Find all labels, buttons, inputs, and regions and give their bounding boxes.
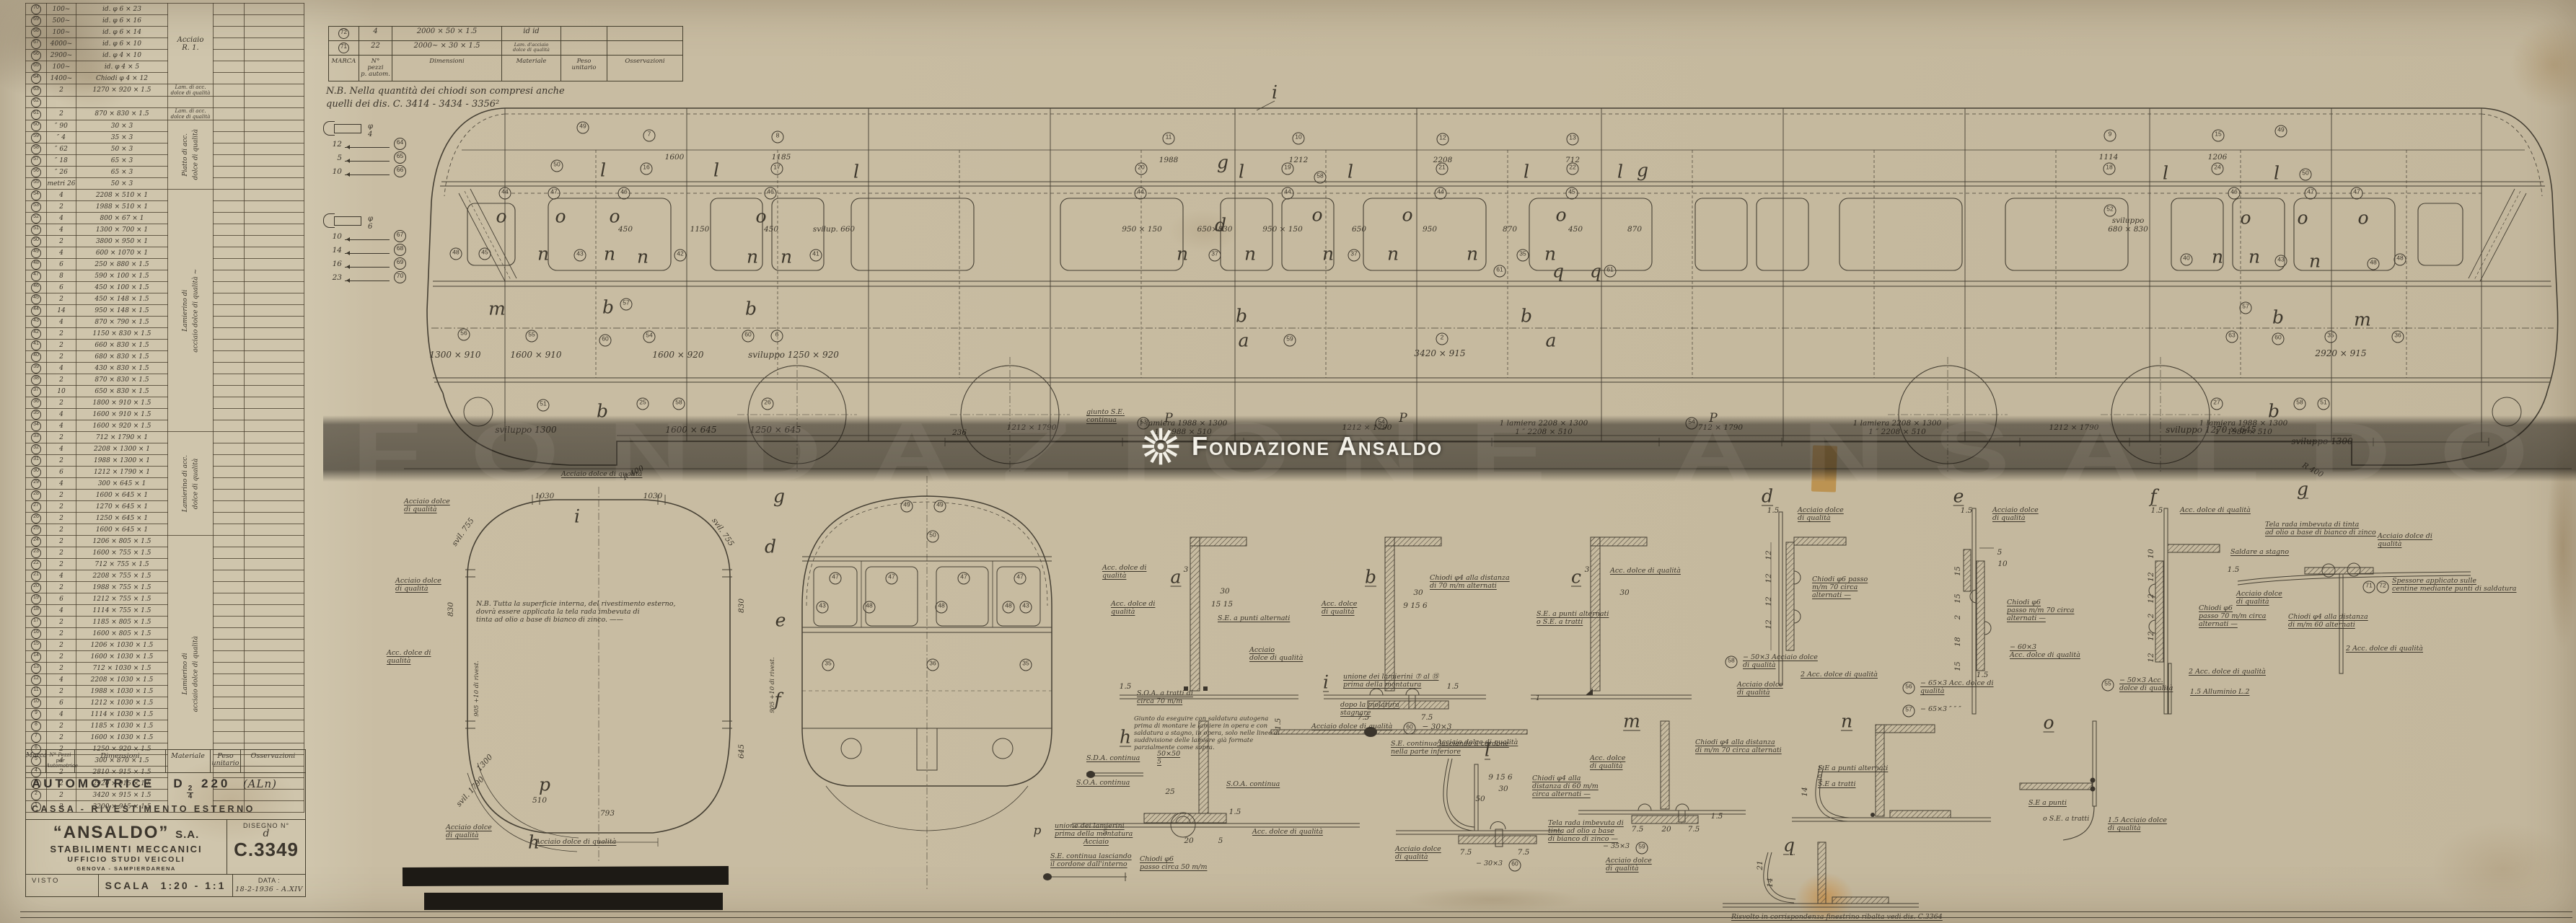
drawing-subtitle: CASSA - RIVESTIMENTO ESTERNO	[32, 804, 299, 814]
ref-circle: 19	[1282, 160, 1294, 175]
parts-row: 1242208 × 1030 × 1.5	[26, 674, 304, 686]
dim-note: 2	[1953, 615, 1962, 620]
ref-circle: 22	[1567, 160, 1579, 175]
part-number: 47	[830, 573, 842, 585]
part-dim: 1206 × 805 × 1.5	[76, 536, 168, 547]
part-dim: 1150 × 830 × 1.5	[76, 328, 168, 340]
ref-circle: 72	[2377, 578, 2389, 593]
dim-note: 1.5 Alluminio L.2	[2190, 688, 2250, 696]
part-dim: 1600 × 755 × 1.5	[76, 547, 168, 559]
part-qty: 6	[47, 259, 76, 270]
part-number: 47	[958, 573, 970, 585]
part-dim: 300 × 645 × 1	[76, 478, 168, 490]
dim-note: Acciaio dolce di qualità	[1992, 506, 2039, 522]
part-peso	[214, 674, 245, 686]
part-number: 65	[394, 151, 406, 164]
part-qty: 2	[47, 340, 76, 351]
parts-row: 58″ 6250 × 3	[26, 143, 304, 155]
part-number: 66	[394, 165, 406, 177]
part-qty: 4	[47, 605, 76, 617]
dim-note: 450	[1568, 225, 1583, 234]
ref-circle: 21	[1436, 160, 1449, 175]
part-marca: 56	[26, 167, 47, 178]
rivet-icon: φ 6	[323, 213, 366, 226]
dim-note: Acc. dolce di qualità	[1322, 600, 1357, 616]
part-dim: 1600 × 645 × 1	[76, 490, 168, 501]
dim-note: 15	[1953, 661, 1962, 671]
part-osservazioni	[245, 73, 304, 84]
dim-note: Acc. dolce di qualità	[1590, 754, 1625, 770]
part-number: 27	[31, 502, 41, 512]
part-marca: 40	[26, 351, 47, 363]
part-marca: 29	[26, 478, 47, 490]
part-marca: 7	[26, 732, 47, 743]
part-peso	[214, 467, 245, 478]
part-letter: p	[1034, 823, 1042, 838]
part-number: 48	[2394, 254, 2406, 266]
part-number: 35	[1517, 249, 1529, 262]
part-qty: 4	[47, 674, 76, 686]
part-number: 45	[479, 248, 491, 260]
ref-circle: 46	[2228, 185, 2241, 200]
ref-circle: 56	[458, 326, 470, 341]
ref-circle: 49	[901, 498, 913, 513]
parts-row: 412660 × 830 × 1.5	[26, 340, 304, 351]
parts-row: 1521206 × 1030 × 1.5	[26, 640, 304, 651]
part-osservazioni	[245, 490, 304, 501]
part-dim: 680 × 830 × 1.5	[76, 351, 168, 363]
part-letter: n	[2248, 247, 2260, 268]
part-dim: 1988 × 510 × 1	[76, 201, 168, 213]
parts-row: 674000~id. φ 6 × 10	[26, 38, 304, 50]
rivet-length-row: 1264	[323, 137, 406, 151]
drawing-title: AUTOMOTRICE D24 220 (ALn)	[32, 777, 299, 800]
part-number: 49	[2275, 125, 2287, 138]
part-osservazioni	[245, 155, 304, 167]
part-dim: 870 × 830 × 1.5	[76, 374, 168, 386]
part-osservazioni	[245, 340, 304, 351]
part-letter: d	[1762, 486, 1773, 507]
part-peso	[214, 409, 245, 420]
part-peso	[214, 443, 245, 455]
part-peso	[214, 73, 245, 84]
ref-circle: 11	[1163, 130, 1175, 145]
dim-note: 7.5	[1421, 713, 1433, 722]
parts-row: 1621600 × 805 × 1.5	[26, 628, 304, 640]
part-number: 31	[31, 456, 41, 466]
part-qty: 2	[47, 513, 76, 524]
dim-note: 12	[2147, 653, 2155, 662]
part-osservazioni	[245, 467, 304, 478]
part-marca: 44	[26, 305, 47, 317]
dim-note: 14	[1801, 787, 1809, 796]
part-qty: 2	[47, 501, 76, 513]
ref-circle: 40	[2181, 251, 2193, 266]
part-qty	[47, 97, 76, 108]
part-peso	[214, 317, 245, 328]
parts-row: 1121988 × 1030 × 1.5	[26, 686, 304, 697]
part-number: 47	[2305, 187, 2317, 200]
upper-table-row: 7242000 × 50 × 1.5id id	[329, 27, 682, 41]
dim-note: Acciaio dolce di qualità	[2236, 590, 2282, 606]
parts-row: 5141300 × 700 × 1	[26, 224, 304, 236]
part-number: 19	[1282, 163, 1294, 175]
part-qty: 2	[47, 617, 76, 628]
ref-circle: 2	[1436, 330, 1449, 345]
parts-row: 821185 × 1030 × 1.5	[26, 720, 304, 732]
ref-circle: 47	[548, 185, 561, 200]
part-dim: 870 × 830 × 1.5	[76, 108, 168, 120]
part-dim: 660 × 830 × 1.5	[76, 340, 168, 351]
dim-note: 2	[2147, 614, 2155, 619]
part-marca: 47	[26, 270, 47, 282]
part-qty: 2	[47, 686, 76, 697]
drawing-sheet: 4978111012139154916001185198812122208712…	[0, 0, 2576, 923]
ref-circle: 42	[674, 247, 687, 262]
part-qty: 2	[47, 374, 76, 386]
part-number: 26	[762, 398, 774, 410]
part-number: 10	[31, 698, 41, 708]
redaction-bar	[403, 866, 729, 886]
dim-note: S.O.A. continua	[1226, 780, 1280, 788]
part-number: 8	[31, 721, 41, 731]
header-cell: Materiale	[166, 750, 211, 772]
part-peso	[214, 720, 245, 732]
parts-row: 2021988 × 755 × 1.5	[26, 582, 304, 593]
part-number: 15	[2212, 130, 2225, 142]
part-qty: 2	[47, 455, 76, 467]
part-number: 35	[1020, 659, 1032, 671]
part-qty: 4000~	[47, 38, 76, 50]
header-cell: N° Pezzi per Automotrice	[46, 750, 75, 772]
part-letter: l	[1485, 740, 1490, 761]
parts-row: 132712 × 1030 × 1.5	[26, 663, 304, 674]
scale-cell: SCALA 1:20 - 1:1	[99, 875, 233, 896]
parts-row: 394430 × 830 × 1.5	[26, 363, 304, 374]
company-block: “ANSALDO” S.A. STABILIMENTI MECCANICI UF…	[26, 820, 227, 874]
part-peso	[214, 178, 245, 190]
part-marca: 8	[26, 720, 47, 732]
header-cell: Peso unitario	[561, 56, 607, 81]
part-marca: 12	[26, 674, 47, 686]
part-letter: n	[537, 244, 549, 265]
parts-row: 60″ 9030 × 3Piatto di acc. dolce di qual…	[26, 120, 304, 132]
parts-row: 5442208 × 510 × 1Lamierino di acciaio do…	[26, 190, 304, 201]
part-number: 36	[2392, 331, 2404, 343]
rivet-icon: φ 4	[323, 121, 366, 134]
part-qty: 4	[47, 443, 76, 455]
part-number: 36	[927, 659, 939, 671]
part-dim: 800 × 67 × 1	[76, 213, 168, 224]
part-marca: 48	[26, 259, 47, 270]
ref-circle: 47	[886, 570, 898, 585]
ref-circle: 18	[2104, 160, 2116, 175]
part-number: 7	[643, 130, 656, 142]
dim-note: sviluppo 680 × 830	[2108, 216, 2148, 234]
parts-row: 402680 × 830 × 1.5	[26, 351, 304, 363]
part-qty: 4	[47, 213, 76, 224]
ref-circle: 41	[810, 247, 822, 262]
part-number: 40	[2181, 254, 2193, 266]
part-letter: b	[1521, 306, 1532, 327]
part-dim: id. φ 6 × 14	[76, 27, 168, 38]
grip-length: 12	[323, 140, 345, 149]
part-marca: 42	[26, 328, 47, 340]
ref-circle: 13	[1567, 131, 1579, 146]
part-dim: 450 × 100 × 1.5	[76, 282, 168, 293]
part-qty: 2	[47, 432, 76, 443]
part-number: 28	[31, 490, 41, 500]
part-number: 52	[31, 213, 41, 224]
dim-note: Chiodi φ6 passo m/m 70 circa alternati —	[2007, 599, 2074, 622]
part-marca: 43	[26, 317, 47, 328]
dim-note: svil. 755	[710, 516, 736, 548]
dim-note: 1988	[1159, 156, 1179, 164]
part-number: 69	[394, 257, 406, 270]
part-dim: 2000 × 50 × 1.5	[392, 27, 502, 40]
part-number: 50	[927, 531, 939, 543]
part-peso	[214, 455, 245, 467]
part-osservazioni	[245, 409, 304, 420]
part-dim: 870 × 790 × 1.5	[76, 317, 168, 328]
part-qty: 100~	[47, 4, 76, 15]
part-number: 58	[2294, 398, 2306, 410]
part-marca: 68	[26, 27, 47, 38]
part-number: 44	[31, 306, 41, 316]
part-material: Lam. di acc. dolce di qualità	[168, 108, 214, 120]
visto-cell: VISTO	[26, 875, 99, 896]
part-osservazioni	[245, 363, 304, 374]
part-osservazioni	[245, 501, 304, 513]
part-dim: 1212 × 1790 × 1	[76, 467, 168, 478]
dim-note: − 50×3 Acc. dolce di qualità	[2119, 676, 2173, 692]
part-number: 44	[1282, 187, 1294, 200]
ref-circle: 59	[1284, 332, 1296, 347]
part-number: 43	[2275, 255, 2287, 268]
part-dim: 3800 × 950 × 1	[76, 236, 168, 247]
dim-note: 14	[1766, 878, 1775, 887]
part-number: 47	[31, 271, 41, 281]
dim-note: Spessore applicato sulle centine mediant…	[2392, 577, 2516, 593]
dim-note: 905 +10 di rivest.	[473, 661, 480, 717]
part-number: 63	[31, 86, 41, 96]
part-letter: c	[1571, 567, 1581, 588]
part-number: 46	[618, 187, 630, 200]
part-number: 47	[548, 187, 561, 200]
ref-circle: 27	[2211, 395, 2223, 410]
part-dim: 1600 × 1030 × 1.5	[76, 732, 168, 743]
part-dim: 2208 × 1300 × 1	[76, 443, 168, 455]
part-number: 64	[394, 138, 406, 150]
dim-note: Acc. dolce di qualità	[2180, 506, 2251, 514]
part-dim: 1988 × 755 × 1.5	[76, 582, 168, 593]
part-number: 50	[2300, 169, 2312, 181]
dim-note: 25	[1165, 787, 1174, 796]
dim-note: 3	[1585, 565, 1590, 574]
part-letter: o	[496, 206, 506, 227]
part-number: 67	[394, 230, 406, 242]
parts-row: 466450 × 100 × 1.5	[26, 282, 304, 293]
part-number: 72	[2377, 581, 2389, 593]
part-marca: 35	[26, 409, 47, 420]
part-number: 17	[31, 617, 41, 627]
parts-row: 494600 × 1070 × 1	[26, 247, 304, 259]
dim-note: Acciaio dolce di qualità	[535, 838, 616, 846]
part-peso	[214, 236, 245, 247]
dim-note: − 30×3	[1476, 860, 1503, 867]
dim-note: 510	[532, 796, 547, 805]
dim-note: dopo la molatura stagnare	[1340, 701, 1399, 717]
part-number: 9	[31, 710, 41, 720]
part-number: 46	[765, 187, 777, 200]
part-marca: 11	[26, 686, 47, 697]
dim-note: S.E. continua lasciando il cordone nella…	[1391, 740, 1509, 756]
part-marca: 66	[26, 50, 47, 61]
dim-note: 50	[1475, 795, 1485, 803]
part-number: 67	[31, 39, 41, 49]
part-letter: l	[1239, 162, 1244, 182]
part-osservazioni	[245, 686, 304, 697]
part-osservazioni	[245, 605, 304, 617]
parts-row: 5321988 × 510 × 1	[26, 201, 304, 213]
part-peso	[214, 61, 245, 73]
part-dim	[76, 97, 168, 108]
part-qty: 2	[47, 328, 76, 340]
part-number: 59	[31, 133, 41, 143]
part-letter: l	[1617, 162, 1623, 182]
part-number: 51	[537, 399, 550, 412]
part-peso	[214, 709, 245, 720]
ref-circle: 60	[1509, 857, 1521, 872]
rivet-diameter: φ 6	[368, 215, 373, 231]
part-number: 15	[31, 640, 41, 650]
parts-row: 332712 × 1790 × 1Lamierino di acc. dolce…	[26, 432, 304, 443]
part-peso	[214, 363, 245, 374]
parts-row: 6321270 × 920 × 1.5Lam. di acc. dolce di…	[26, 84, 304, 97]
dim-note: 7.5	[1518, 848, 1530, 857]
ref-circle: 12	[1437, 131, 1449, 146]
grip-length: 10	[323, 167, 345, 176]
material-label: Piatto di acc. dolce di qualità	[180, 129, 201, 180]
part-peso	[214, 340, 245, 351]
part-marca: 72	[329, 27, 359, 40]
dim-note: 12	[1764, 619, 1773, 629]
part-marca: 57	[26, 155, 47, 167]
ref-circle: 60	[599, 332, 612, 347]
part-qty: 4	[47, 363, 76, 374]
part-qty: 1400~	[47, 73, 76, 84]
ref-circle: 61	[1604, 262, 1617, 278]
part-letter: f	[2150, 486, 2156, 507]
part-marca: 65	[26, 61, 47, 73]
part-osservazioni	[245, 132, 304, 143]
ref-circle: 7	[643, 127, 656, 142]
part-qty: 6	[47, 697, 76, 709]
part-qty: 2	[47, 490, 76, 501]
part-peso	[214, 582, 245, 593]
part-peso	[561, 41, 607, 55]
part-osservazioni	[245, 559, 304, 570]
ref-circle: 46	[618, 185, 630, 200]
part-osservazioni	[245, 213, 304, 224]
ref-circle: 48	[450, 245, 462, 260]
dim-note: Acciaio dolce di qualità	[404, 498, 450, 513]
part-marca: 63	[26, 84, 47, 97]
part-letter: h	[1120, 727, 1131, 748]
part-number: 12	[1437, 133, 1449, 146]
part-qty: 22	[359, 41, 392, 55]
ref-circle: 58	[1726, 653, 1738, 668]
part-letter: b	[2272, 307, 2284, 328]
part-peso	[214, 143, 245, 155]
dim-note: 950	[1423, 225, 1437, 234]
part-marca: 30	[26, 467, 47, 478]
ref-circle: 57	[1903, 702, 1915, 717]
dim-note: 870	[1503, 225, 1517, 234]
part-qty: 2	[47, 536, 76, 547]
part-qty: 2	[47, 84, 76, 97]
nb-note: N.B. Nella quantità dei chiodi son compr…	[326, 85, 629, 110]
part-letter: n	[781, 247, 792, 268]
part-letter: b	[602, 297, 614, 318]
dim-note: o S.E. a tratti	[2043, 815, 2089, 823]
part-osservazioni	[245, 582, 304, 593]
part-number: 62	[31, 97, 41, 107]
dim-note: Tela rada imbevuta di tinta ad olio a ba…	[1548, 819, 1624, 843]
ref-circle: 43	[817, 599, 829, 614]
part-peso	[214, 732, 245, 743]
part-number: 46	[31, 283, 41, 293]
dim-note: 645	[737, 744, 746, 759]
part-material: Lamierino di acciaio dolce di qualità ~	[168, 190, 214, 432]
part-qty: 2	[47, 651, 76, 663]
dim-note: Acciaio dolce di qualità	[1737, 681, 1783, 697]
watermark-band: FONDAZIONE ANSALDO	[323, 415, 2576, 482]
leader-line	[345, 233, 390, 240]
dim-note: 30	[1498, 785, 1508, 793]
dim-note: 20	[1661, 825, 1671, 834]
part-letter: n	[1387, 244, 1399, 265]
dim-note: 1.5	[1961, 506, 1973, 515]
part-peso	[214, 547, 245, 559]
header-cell: Materiale	[502, 56, 561, 81]
rivet-length-row: 1066	[323, 164, 406, 178]
parts-row: 5023800 × 950 × 1	[26, 236, 304, 247]
part-number: 19	[31, 594, 41, 604]
part-peso	[214, 374, 245, 386]
rivet-group: φ 61067146816692370	[323, 213, 406, 284]
dim-note: S.E. continua lasciando il cordone dall'…	[1050, 852, 1132, 868]
rivet-length-row: 1468	[323, 243, 406, 257]
ref-circle: 35	[1020, 656, 1032, 671]
ref-circle: 57	[2240, 299, 2252, 314]
part-letter: n	[1244, 244, 1256, 265]
part-peso	[214, 282, 245, 293]
dim-note: 20	[1184, 836, 1193, 845]
part-dim: 450 × 148 × 1.5	[76, 293, 168, 305]
upper-table-header: MARCAN° pezzi p. autom.DimensioniMateria…	[329, 56, 682, 81]
ref-circle: 36	[927, 656, 939, 671]
ref-circle: 48	[2394, 251, 2406, 266]
part-marca: 53	[26, 201, 47, 213]
dim-note: 1.5	[1274, 718, 1283, 730]
part-peso	[214, 50, 245, 61]
dim-note: 2 Acc. dolce di qualità	[1801, 671, 1878, 679]
part-number: 33	[31, 433, 41, 443]
dim-note: 15 15	[1211, 600, 1233, 609]
dim-note: 12	[1764, 573, 1773, 583]
part-letter: n	[637, 247, 649, 268]
